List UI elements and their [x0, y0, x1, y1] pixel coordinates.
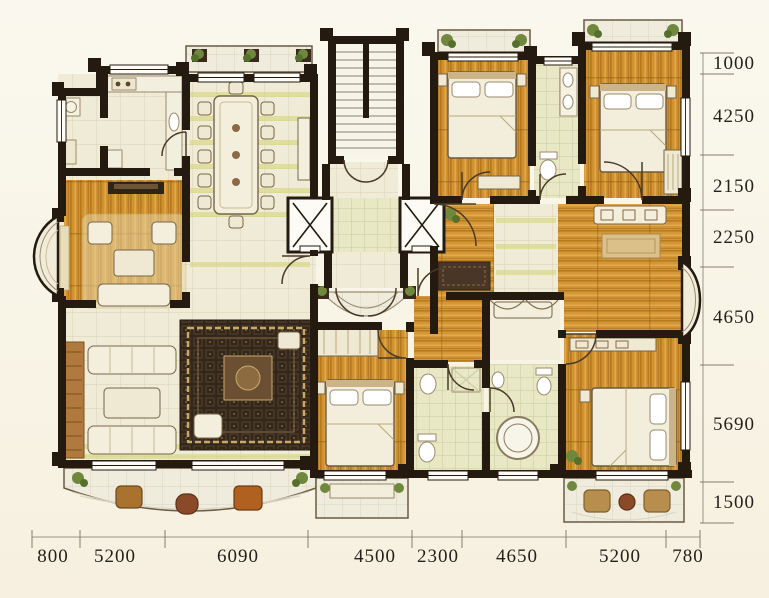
- dim-right-2250: 2250: [706, 227, 762, 249]
- floor-plan-screenshot: 1000 4250 2150 2250 4650 5690 1500 800 5…: [0, 0, 769, 598]
- bedroom-a-balcony: [438, 30, 530, 52]
- dim-bottom-5200-b: 5200: [588, 546, 652, 568]
- bay-window-right: [682, 262, 700, 338]
- dim-right-2150: 2150: [706, 176, 762, 198]
- dim-bottom-2300: 2300: [406, 546, 470, 568]
- dim-bottom-800: 800: [21, 546, 85, 568]
- floor-plan-canvas: [0, 0, 769, 598]
- dim-bottom-5200-a: 5200: [83, 546, 147, 568]
- dim-bottom-4500: 4500: [343, 546, 407, 568]
- elevator-left: [288, 198, 332, 252]
- stair-hall-floor: [330, 162, 398, 198]
- vestibule-floor: [332, 252, 400, 288]
- dim-bottom-4650: 4650: [485, 546, 549, 568]
- bay-window-left: [34, 216, 58, 296]
- window-nook-bench: [490, 300, 558, 318]
- living-room-balcony: [64, 468, 316, 514]
- master-b-balcony: [584, 20, 682, 42]
- dim-right-4250: 4250: [706, 106, 762, 128]
- dim-bottom-6090: 6090: [206, 546, 270, 568]
- dining-balcony: [186, 46, 312, 72]
- corridor-floor: [414, 296, 484, 362]
- dim-right-4650: 4650: [706, 307, 762, 329]
- bedroom-c-balcony: [316, 478, 408, 518]
- dim-bottom-780: 780: [656, 546, 720, 568]
- entrance-porch: [316, 286, 416, 316]
- dim-right-5690: 5690: [706, 414, 762, 436]
- master-d-balcony: [564, 478, 684, 522]
- living-room-sofas: [64, 342, 176, 458]
- elevator-lobby-floor: [332, 198, 400, 252]
- dim-right-1000: 1000: [706, 53, 762, 75]
- dim-right-1500: 1500: [706, 492, 762, 514]
- elevator-right: [400, 198, 444, 252]
- living-room-carpet: [180, 320, 312, 450]
